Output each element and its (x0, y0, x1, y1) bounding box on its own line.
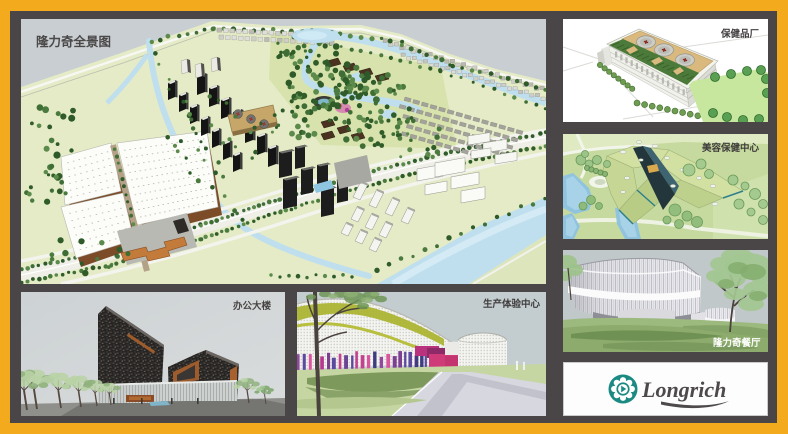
svg-text:隆力奇全景图: 隆力奇全景图 (36, 34, 111, 49)
svg-text:保健品厂: 保健品厂 (720, 28, 760, 40)
svg-text:办公大楼: 办公大楼 (233, 300, 272, 312)
svg-text:Longrich: Longrich (641, 377, 726, 402)
svg-text:美容保健中心: 美容保健中心 (701, 142, 760, 154)
svg-text:隆力奇餐厅: 隆力奇餐厅 (713, 337, 761, 349)
svg-text:生产体验中心: 生产体验中心 (483, 298, 541, 310)
